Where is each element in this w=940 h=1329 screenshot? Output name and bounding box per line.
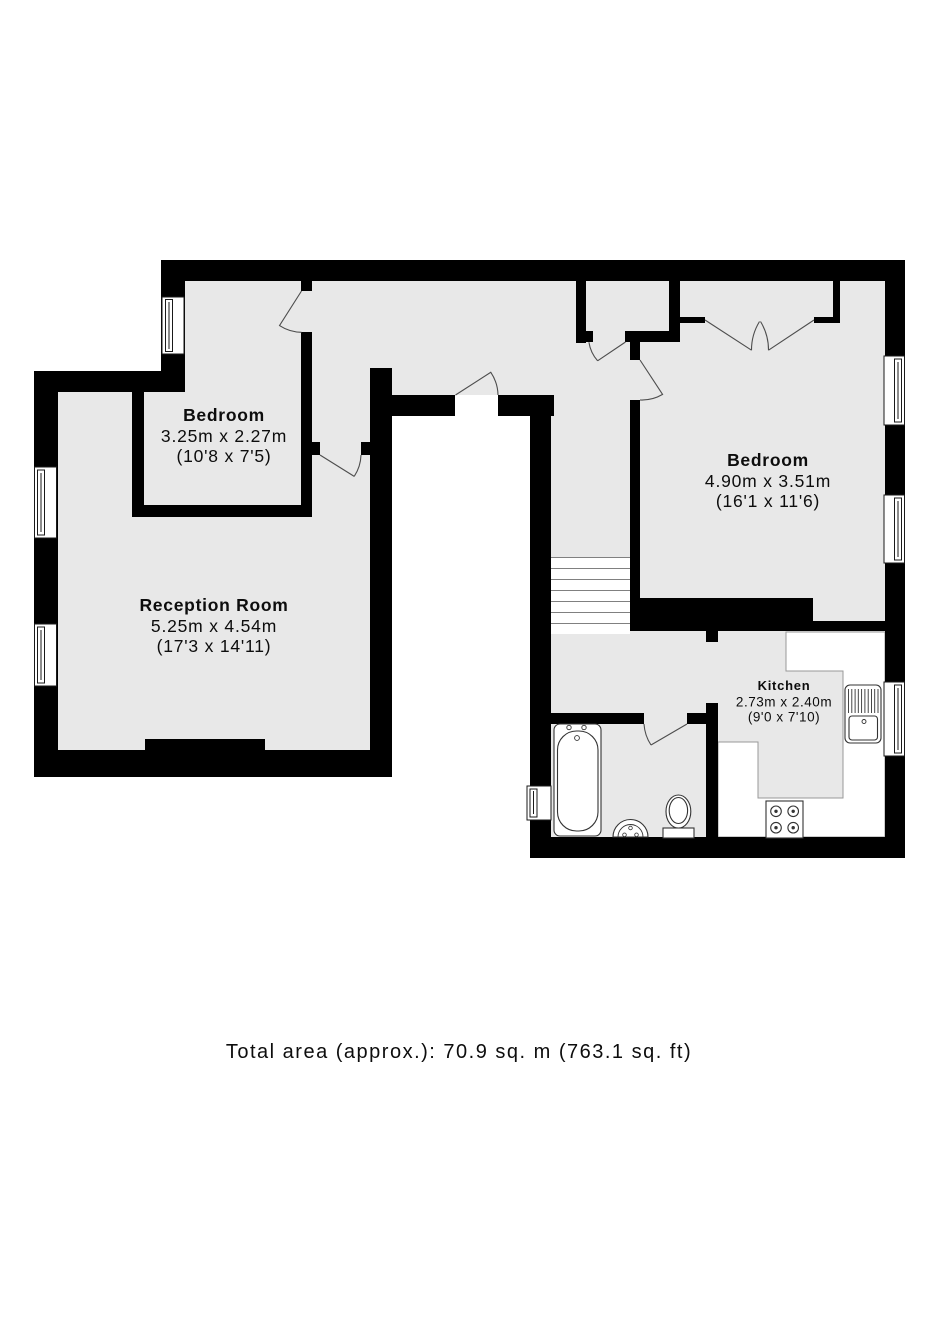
svg-text:Bedroom: Bedroom [183, 405, 265, 425]
svg-text:3.25m x 2.27m: 3.25m x 2.27m [161, 426, 287, 446]
svg-text:Reception Room: Reception Room [139, 595, 288, 615]
svg-text:(16'1 x 11'6): (16'1 x 11'6) [716, 491, 820, 511]
svg-text:5.25m x 4.54m: 5.25m x 4.54m [151, 616, 277, 636]
svg-text:(9'0 x 7'10): (9'0 x 7'10) [748, 710, 820, 725]
svg-text:2.73m x 2.40m: 2.73m x 2.40m [736, 695, 832, 710]
svg-text:Kitchen: Kitchen [758, 678, 811, 693]
svg-text:4.90m x 3.51m: 4.90m x 3.51m [705, 471, 831, 491]
svg-text:(17'3 x 14'11): (17'3 x 14'11) [157, 636, 272, 656]
svg-text:Bedroom: Bedroom [727, 450, 809, 470]
svg-text:(10'8 x 7'5): (10'8 x 7'5) [176, 446, 271, 466]
svg-text:Total area (approx.): 70.9 sq.: Total area (approx.): 70.9 sq. m (763.1 … [226, 1041, 692, 1063]
